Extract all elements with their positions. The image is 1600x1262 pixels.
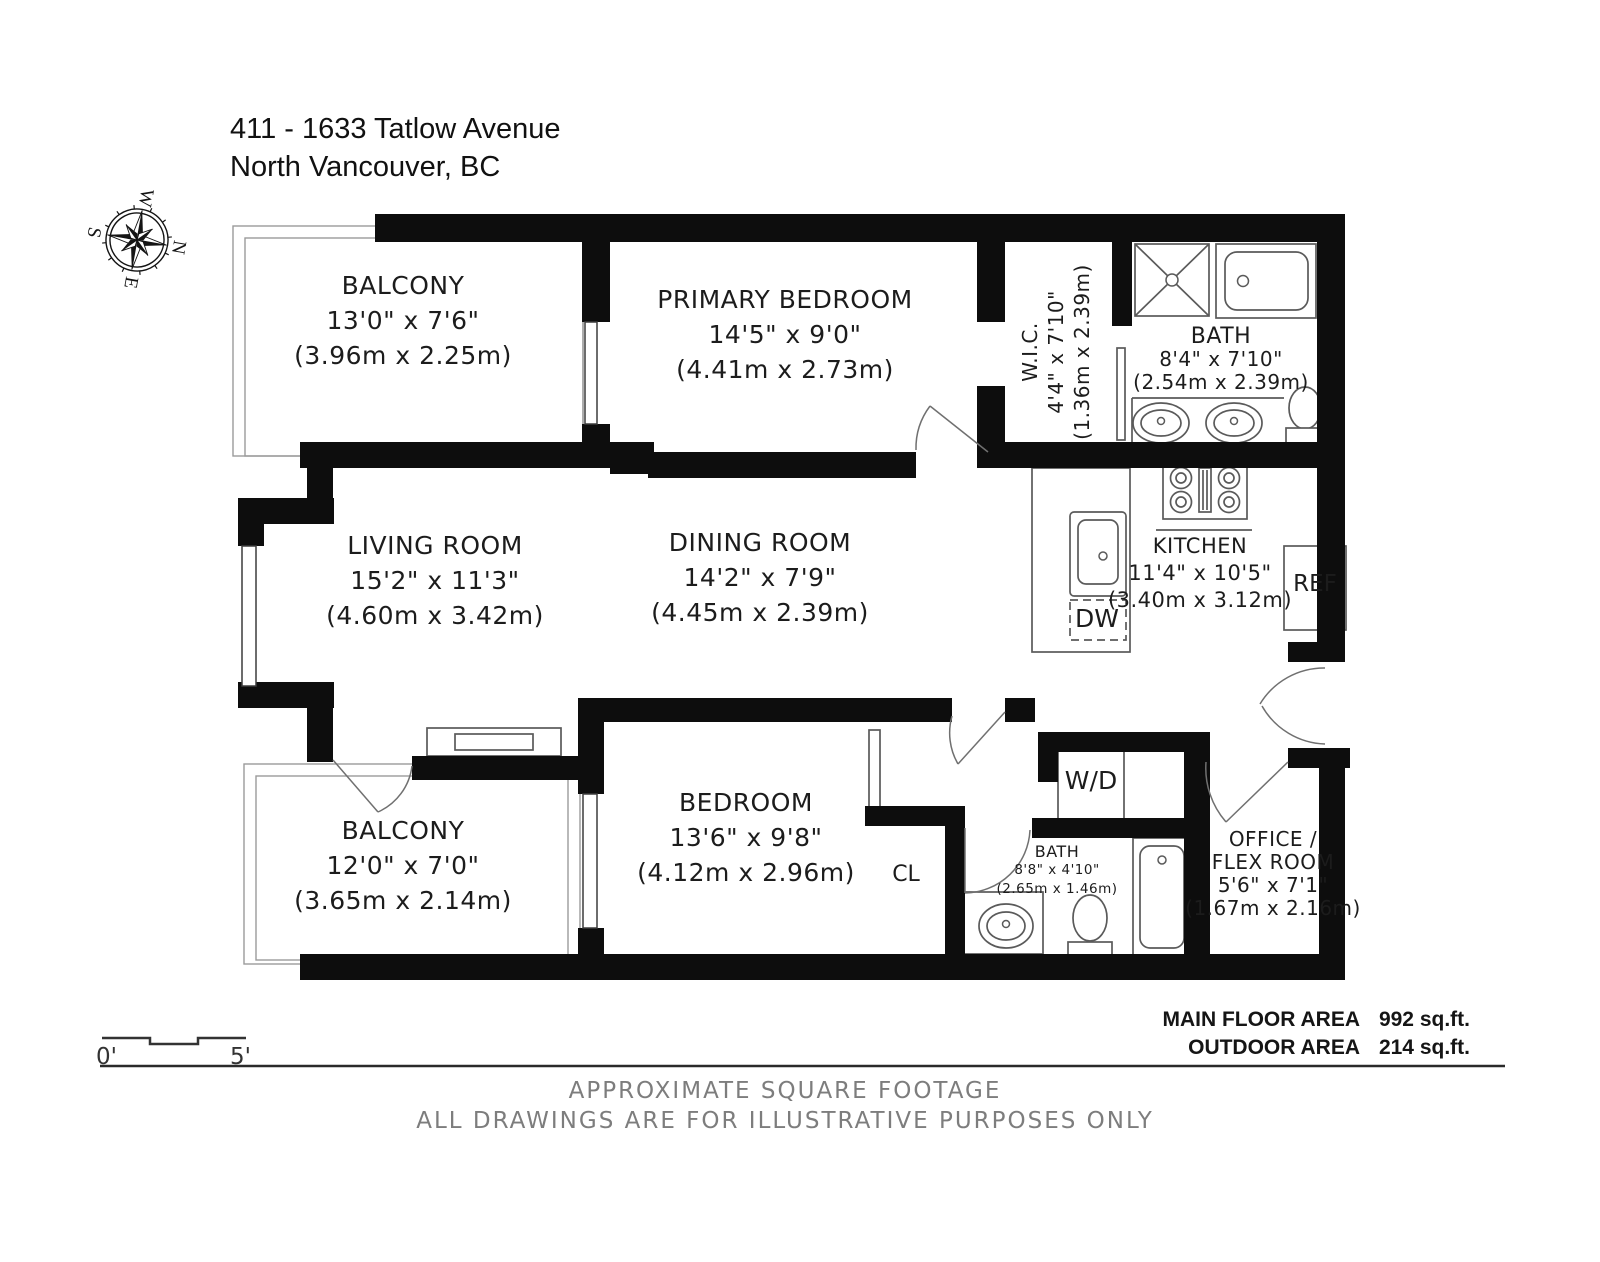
room-label-bath-2: BATH 8'8" x 4'10" (2.65m x 1.46m) [996, 842, 1117, 899]
washer-dryer-label: W/D [1065, 766, 1117, 795]
fridge-label: REF [1293, 571, 1337, 597]
floorplan-drawing: N E S W [0, 0, 1600, 1262]
bathtub-1 [1216, 244, 1316, 318]
area-value: 214 sq.ft. [1360, 1034, 1470, 1062]
room-label-wic: W.I.C. 4'4" x 7'10" (1.36m x 2.39m) [1017, 264, 1095, 440]
room-label-bedroom: BEDROOM 13'6" x 9'8" (4.12m x 2.96m) [637, 785, 855, 890]
bathtub-2 [1133, 838, 1191, 956]
room-label-kitchen: KITCHEN 11'4" x 10'5" (3.40m x 3.12m) [1108, 533, 1292, 614]
area-label: MAIN FLOOR AREA [1120, 1006, 1360, 1034]
dishwasher-label: DW [1075, 604, 1119, 633]
address-line: 411 - 1633 Tatlow Avenue [230, 110, 561, 148]
closet-label: CL [892, 862, 920, 887]
window-3 [583, 794, 597, 928]
area-row-main: MAIN FLOOR AREA 992 sq.ft. [1120, 1006, 1470, 1034]
room-label-primary-bedroom: PRIMARY BEDROOM 14'5" x 9'0" (4.41m x 2.… [657, 282, 912, 387]
room-label-living-room: LIVING ROOM 15'2" x 11'3" (4.60m x 3.42m… [326, 528, 544, 633]
area-row-outdoor: OUTDOOR AREA 214 sq.ft. [1120, 1034, 1470, 1062]
room-label-bath-1: BATH 8'4" x 7'10" (2.54m x 2.39m) [1133, 325, 1309, 394]
compass-s: S [83, 225, 106, 239]
disclaimer: APPROXIMATE SQUARE FOOTAGE ALL DRAWINGS … [416, 1076, 1154, 1136]
fireplace [427, 728, 561, 756]
compass-points [102, 205, 172, 275]
page-title: 411 - 1633 Tatlow Avenue North Vancouver… [230, 110, 561, 186]
vanity-double-sink [1132, 398, 1284, 443]
stove [1163, 461, 1247, 519]
closet-panel [869, 730, 880, 818]
room-label-balcony-1: BALCONY 13'0" x 7'6" (3.96m x 2.25m) [294, 268, 512, 373]
room-label-dining-room: DINING ROOM 14'2" x 7'9" (4.45m x 2.39m) [651, 525, 869, 630]
compass-w: W [134, 187, 158, 208]
area-value: 992 sq.ft. [1360, 1006, 1470, 1034]
compass-n: N [167, 239, 190, 256]
room-label-office-flex: OFFICE / FLEX ROOM 5'6" x 7'1" (1.67m x … [1185, 828, 1361, 920]
scale-end: 5' [230, 1044, 251, 1070]
window-2 [242, 546, 256, 686]
toilet-2 [1068, 895, 1112, 955]
pocket-door [1117, 348, 1125, 440]
area-summary: MAIN FLOOR AREA 992 sq.ft. OUTDOOR AREA … [1120, 1006, 1470, 1062]
window-1 [585, 322, 597, 424]
room-label-balcony-2: BALCONY 12'0" x 7'0" (3.65m x 2.14m) [294, 813, 512, 918]
compass-e: E [119, 275, 142, 290]
vanity-sink-2 [963, 892, 1043, 954]
scale-start: 0' [96, 1044, 117, 1070]
shower [1135, 244, 1209, 316]
compass-rose: N E S W [75, 179, 198, 297]
city-line: North Vancouver, BC [230, 148, 561, 186]
disclaimer-line-1: APPROXIMATE SQUARE FOOTAGE [416, 1076, 1154, 1106]
area-label: OUTDOOR AREA [1120, 1034, 1360, 1062]
floorplan-page: N E S W 411 - 1633 Tatlow Avenue North V… [0, 0, 1600, 1262]
disclaimer-line-2: ALL DRAWINGS ARE FOR ILLUSTRATIVE PURPOS… [416, 1106, 1154, 1136]
scale-bar [102, 1038, 246, 1044]
